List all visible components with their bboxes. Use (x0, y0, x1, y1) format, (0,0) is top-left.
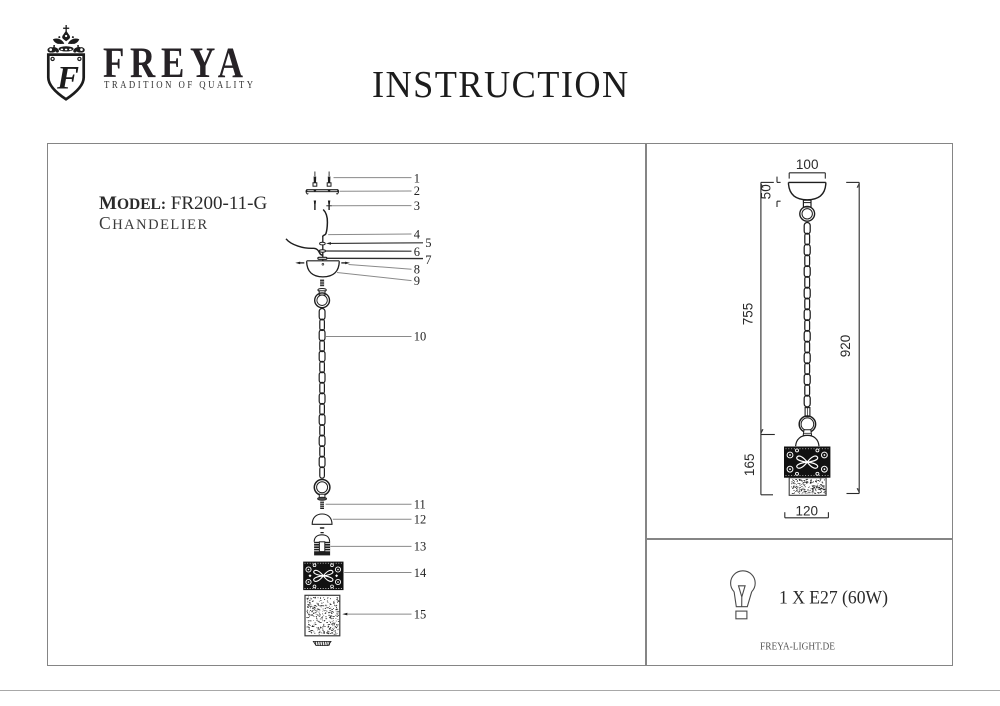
svg-text:5: 5 (425, 236, 431, 250)
svg-text:1 X E27 (60W): 1 X E27 (60W) (779, 587, 888, 608)
svg-text:4: 4 (414, 227, 421, 241)
svg-text:7: 7 (425, 253, 431, 267)
svg-text:2: 2 (414, 184, 420, 198)
svg-text:920: 920 (838, 335, 853, 358)
svg-text:15: 15 (414, 607, 427, 621)
svg-text:755: 755 (741, 303, 756, 326)
svg-text:13: 13 (414, 540, 427, 554)
svg-text:11: 11 (414, 498, 426, 512)
svg-text:FREYA-LIGHT.DE: FREYA-LIGHT.DE (760, 641, 835, 653)
svg-text:F: F (56, 61, 79, 97)
svg-text:9: 9 (414, 274, 420, 288)
svg-text:12: 12 (414, 513, 427, 527)
svg-text:1: 1 (414, 171, 420, 185)
svg-text:10: 10 (414, 330, 427, 344)
svg-text:14: 14 (414, 566, 427, 580)
svg-text:120: 120 (796, 504, 819, 519)
svg-text:100: 100 (796, 157, 819, 172)
svg-text:3: 3 (414, 199, 420, 213)
svg-text:6: 6 (414, 245, 420, 259)
svg-text:165: 165 (742, 454, 757, 477)
